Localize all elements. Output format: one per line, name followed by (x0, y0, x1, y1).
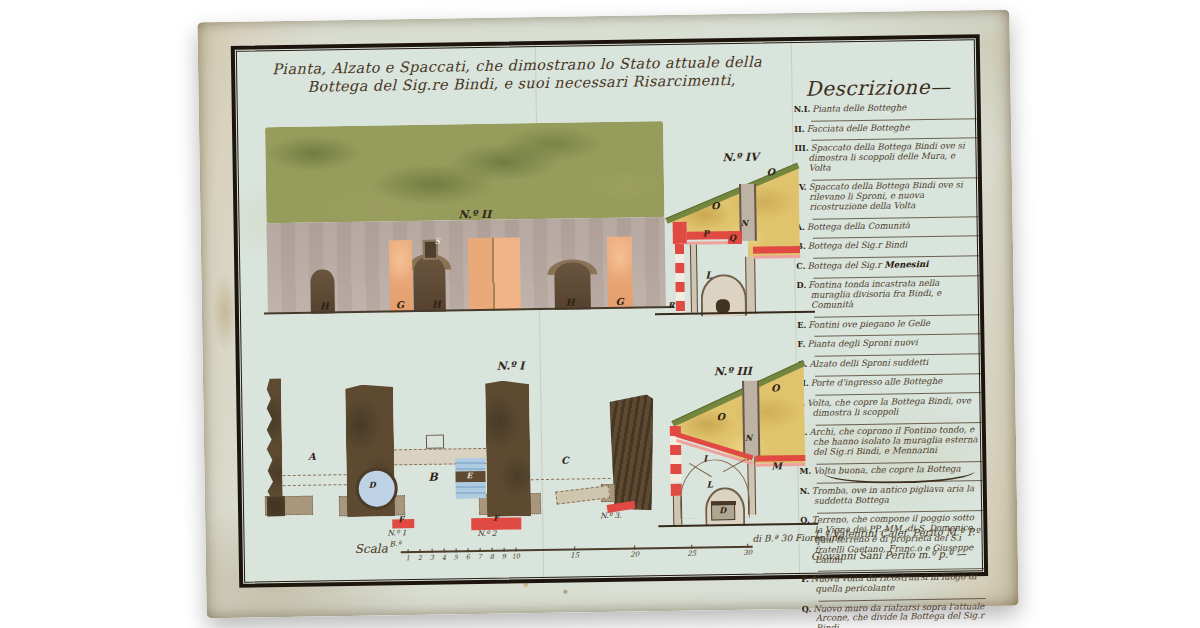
item-text: Pianta degli Sproni nuovi (807, 337, 918, 349)
scale-tick: 9 (502, 553, 506, 561)
letter-q: Q (729, 233, 737, 243)
description-item: P.Nuova volta da ricostruirsi in luogo d… (801, 572, 985, 604)
letter-g: G (396, 299, 404, 310)
scale-tick: 30 (743, 549, 752, 557)
plan-wall-right (609, 394, 655, 511)
description-item: D.Fontina tonda incastrata nella muragli… (797, 278, 982, 320)
letter-a: A (308, 451, 316, 462)
scale-tick: 25 (687, 550, 696, 558)
item-text: Nuova volta da ricostruirsi in luogo di … (811, 572, 977, 593)
sprone-caption-1: N.º 1 (387, 528, 406, 537)
item-text: Alzato delli Sproni suddetti (809, 357, 928, 369)
scale-tick: 10 (512, 552, 520, 560)
scale-tick: 15 (570, 551, 579, 559)
letter-e: E (466, 471, 472, 480)
item-key: N.I. (794, 104, 813, 114)
scale-tick: 6 (466, 553, 470, 561)
letter-n: N (741, 218, 748, 228)
description-item: IV.Spaccato della Bottega Bindi ove si r… (795, 181, 980, 223)
scale-label: Scala (355, 541, 388, 556)
plan-label: N.º I (497, 359, 525, 372)
scale-tick: 3 (430, 554, 434, 562)
item-text: Bottega del Sig.r Bindi (808, 239, 908, 251)
letter-o: O (767, 166, 775, 177)
section-iv-drawing: N.º IV O O N P Q (658, 150, 811, 322)
letter-o: O (771, 382, 779, 393)
letter-f: F (398, 514, 404, 524)
letter-o: O (711, 200, 719, 211)
item-text: Nuovo muro da rialzarsi sopra l'attuale … (813, 602, 984, 628)
item-key: P. (801, 574, 811, 584)
letter-p: P (703, 228, 710, 238)
item-text: Tromba, ove in antico pigliava aria la s… (812, 484, 975, 505)
letter-l: L (707, 479, 713, 489)
description-item: O.Terreno, che compone il poggio sotto l… (800, 514, 985, 576)
item-text: Fontini ove piegano le Gelle (808, 318, 930, 330)
floor-plan-drawing: N.º I (265, 357, 670, 543)
item-text: Pianta delle Botteghe (812, 102, 906, 113)
item-text: Bottega della Comunità (807, 220, 910, 232)
scale-tick: 7 (478, 553, 482, 561)
air-shaft (742, 381, 760, 457)
letter-l: L (705, 269, 712, 280)
paper-stain (562, 589, 568, 595)
letter-g: G (616, 296, 624, 307)
scale-tick: 20 (630, 551, 639, 559)
plan-notch (426, 435, 444, 449)
description-item: Q.Nuovo muro da rialzarsi sopra l'attual… (802, 602, 987, 628)
vault-underline (753, 255, 800, 259)
pilaster-sprone-pair (468, 237, 521, 311)
facade-door-center (413, 257, 446, 312)
description-header: Descrizione— (805, 74, 977, 101)
item-text: Fontina tonda incastrata nella muraglia … (808, 278, 941, 309)
item-key: E. (797, 319, 808, 329)
section-iv-label: N.º IV (722, 151, 758, 165)
scale-tick: 2 (418, 554, 422, 562)
letter-m: M (771, 460, 782, 471)
section-iii-label: N.º III (714, 365, 752, 379)
plan-wall-left-foot (267, 496, 285, 516)
letter-n: N (745, 433, 752, 443)
new-pier-red (673, 222, 687, 244)
item-text: Spaccato della Bottega Bindi ove si rile… (809, 181, 963, 212)
photo-background: Pianta, Alzato e Spaccati, che dimostran… (0, 0, 1200, 628)
letter-r: R (668, 300, 675, 310)
item-text: Facciata delle Botteghe (807, 122, 910, 134)
item-text: Porte d'ingresso alle Botteghe (811, 376, 943, 388)
sprone-caption-3: N.º 3. (600, 511, 622, 520)
section-iii-drawing: N.º III O O N (662, 360, 815, 532)
item-key: Q. (802, 603, 814, 613)
letter-i: I (703, 453, 707, 463)
letter-f: F (493, 513, 499, 523)
letter-h: H (320, 300, 329, 311)
construction-dashed-line (283, 484, 347, 486)
letter-h: H (566, 297, 575, 308)
right-vault-band (753, 246, 800, 254)
item-text: Archi, che coprono il Fontino tondo, e c… (809, 425, 977, 456)
water-basin-upper (455, 458, 485, 471)
letter-o: O (717, 411, 725, 422)
scale-prefix: B.ª (390, 539, 402, 548)
plan-wall-left (265, 378, 283, 514)
item-key: F. (797, 339, 807, 349)
scale-tick: 4 (442, 554, 446, 562)
description-item: I.Volta, che copre la Bottega Bindi, ove… (798, 396, 982, 428)
border-frame: Pianta, Alzato e Spaccati, che dimostran… (231, 34, 988, 588)
description-panel: Descrizione— N.I.Pianta delle Botteghe I… (793, 74, 987, 628)
item-text-bold: Menesini (884, 259, 928, 270)
description-item: N.Tromba, ove in antico pigliava aria la… (800, 484, 984, 516)
paper-sheet: Pianta, Alzato e Spaccati, che dimostran… (197, 10, 1018, 619)
construction-dashed-line (282, 474, 346, 476)
item-text: Bottega del Sig.r (807, 259, 884, 270)
facade-label: N.º II (458, 208, 491, 222)
letter-d: D (369, 480, 376, 490)
sprone-caption-2: N.º 2 (477, 529, 496, 538)
facade-elevation-drawing: N.º II H G H H G S (265, 119, 666, 317)
item-text: Volta, che copre la Bottega Bindi, ove d… (807, 396, 971, 417)
item-text: Spaccato della Bottega Bindi ove si dimo… (808, 141, 964, 172)
letter-h: H (432, 299, 441, 310)
letter-c: C (561, 455, 569, 466)
water-basin-lower (456, 482, 486, 498)
letter-b: B (428, 471, 438, 484)
description-item: L.Archi, che coprono il Fontino tondo, e… (799, 425, 984, 467)
item-key: II. (794, 123, 807, 133)
scale-tick: 1 (406, 554, 410, 562)
letter-d: D (719, 505, 726, 515)
plan-pier-2 (485, 380, 531, 517)
letter-s: S (435, 237, 441, 246)
scale-tick: 5 (454, 553, 458, 561)
construction-dashed-line (531, 478, 611, 480)
description-item: III.Spaccato della Bottega Bindi ove si … (794, 141, 979, 183)
scale-tick: 8 (490, 553, 494, 561)
interior-wall-line (690, 245, 698, 313)
striped-sprone (675, 244, 685, 314)
